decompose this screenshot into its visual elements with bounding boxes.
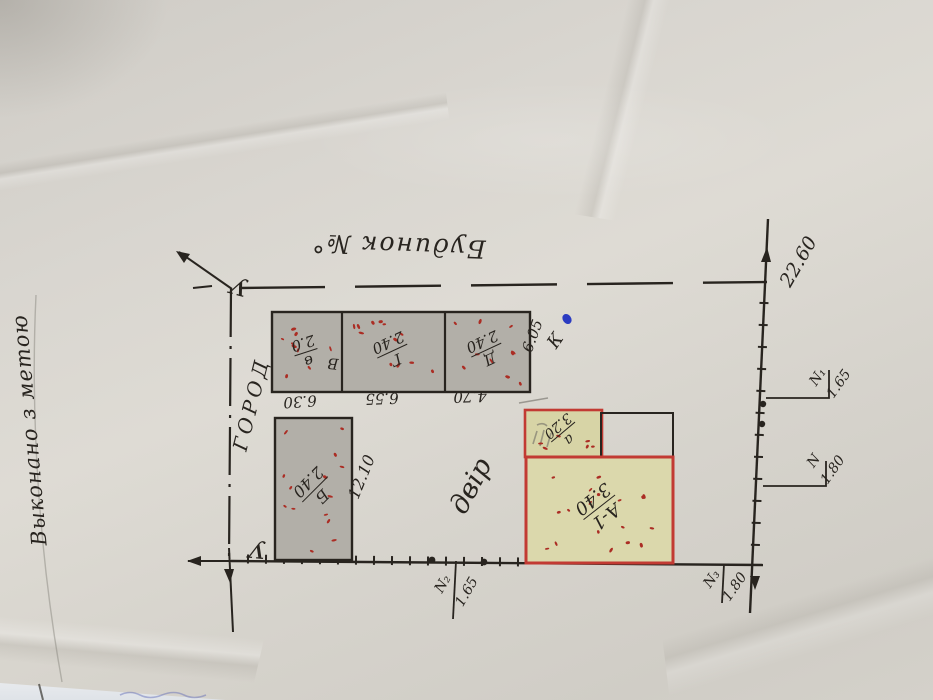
tick (193, 286, 212, 288)
dim-v-width: 6.30 (283, 392, 317, 409)
boundary-point (760, 401, 766, 407)
arrow-icon (176, 251, 190, 263)
boundary-point (481, 559, 488, 566)
boundary-point (759, 421, 765, 427)
right-boundary-line (750, 219, 768, 613)
boundary-point (429, 557, 436, 564)
building-v-extra-letter: В (327, 355, 339, 371)
arrow-icon (187, 556, 201, 566)
blue-ink-smudge (120, 693, 206, 698)
corner-mark-bottom: У (247, 536, 266, 561)
bottom-boundary-line (231, 561, 763, 565)
arrow-icon (224, 569, 234, 583)
street-label: Будинок №° (310, 230, 486, 261)
building-porch (601, 413, 673, 457)
blue-ink-dot (560, 312, 573, 326)
photo-edge-mark (39, 684, 43, 700)
left-boundary-line (229, 289, 231, 561)
street-boundary-line (239, 282, 767, 288)
scanned-site-plan-photo: Выконано з метою Будинок №° У У ГОРОД дв… (0, 0, 933, 700)
benchmark-n2-line (453, 561, 456, 619)
dim-d-width: 4.70 (453, 388, 487, 404)
dim-g-width: 6.55 (365, 390, 399, 406)
